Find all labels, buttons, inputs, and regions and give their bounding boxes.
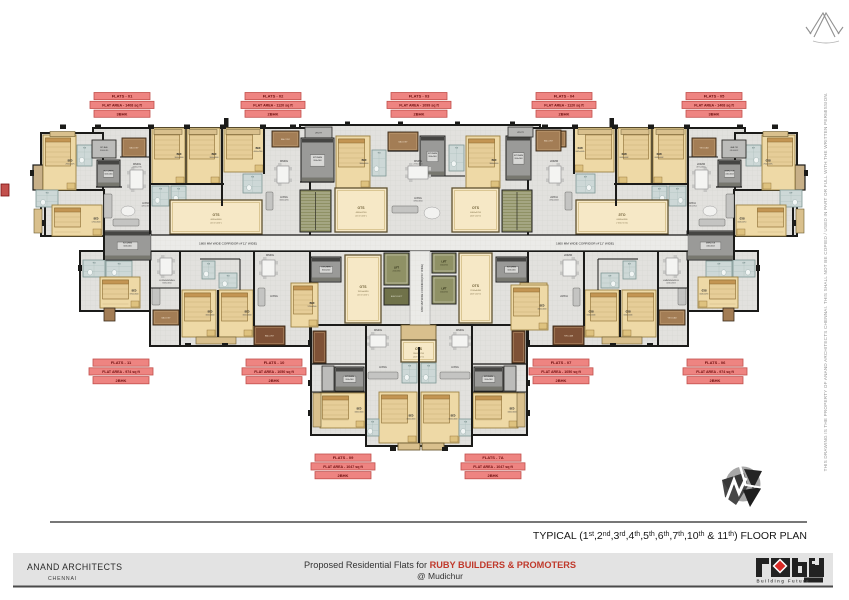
- svg-text:TOI: TOI: [427, 366, 430, 368]
- svg-text:BED: BED: [310, 303, 315, 305]
- svg-text:BALCONY: BALCONY: [398, 141, 408, 144]
- svg-text:OTS: OTS: [618, 213, 626, 217]
- svg-text:TYPICAL (1st,2nd,3rd,4th,5th,6: TYPICAL (1st,2nd,3rd,4th,5th,6th,7th,10t…: [533, 530, 807, 542]
- svg-text:3000x4265: 3000x4265: [549, 200, 558, 202]
- svg-text:FLAT AREA - 974 sq ft: FLAT AREA - 974 sq ft: [696, 370, 734, 374]
- svg-text:BED: BED: [132, 291, 137, 293]
- svg-text:TOI: TOI: [584, 177, 587, 179]
- svg-text:BALCONY: BALCONY: [265, 335, 275, 338]
- svg-text:BED: BED: [588, 312, 593, 314]
- svg-text:3000x2400: 3000x2400: [345, 379, 353, 381]
- svg-text:BED: BED: [577, 148, 582, 150]
- svg-text:TOI: TOI: [455, 148, 458, 150]
- svg-text:FLATS - 04: FLATS - 04: [554, 94, 575, 99]
- svg-text:BED: BED: [409, 416, 414, 418]
- svg-text:TOI: TOI: [177, 189, 180, 191]
- svg-text:TOI: TOI: [378, 153, 381, 155]
- svg-text:LIVING: LIVING: [270, 296, 278, 298]
- svg-text:BED: BED: [208, 312, 213, 314]
- svg-text:Building Future: Building Future: [757, 579, 811, 584]
- svg-text:2084x1480: 2084x1480: [100, 150, 108, 152]
- svg-text:TOI: TOI: [83, 148, 86, 150]
- svg-text:TOI: TOI: [207, 264, 210, 266]
- svg-text:FLATS - 07: FLATS - 07: [551, 360, 572, 365]
- svg-text:FLATS - 03: FLATS - 03: [409, 94, 430, 99]
- svg-text:4400x3700: 4400x3700: [356, 212, 368, 214]
- svg-text:DINING: DINING: [280, 161, 288, 163]
- svg-text:BED: BED: [357, 409, 362, 411]
- svg-text:UTILITY: UTILITY: [517, 132, 525, 134]
- svg-text:SIT-BAL: SIT-BAL: [100, 146, 109, 149]
- svg-text:KITCHEN: KITCHEN: [104, 171, 114, 173]
- svg-text:3400x3000: 3400x3000: [508, 412, 517, 414]
- svg-text:TOI: TOI: [118, 264, 121, 266]
- svg-text:3000x2400: 3000x2400: [104, 174, 112, 176]
- svg-text:3000x2400: 3000x2400: [725, 174, 733, 176]
- svg-text:LIFT: LIFT: [394, 267, 400, 270]
- svg-text:BALCONY: BALCONY: [544, 140, 554, 143]
- svg-text:3780x3050: 3780x3050: [413, 201, 422, 203]
- svg-text:UTILITY: UTILITY: [315, 133, 323, 135]
- svg-text:TOI: TOI: [658, 189, 661, 191]
- svg-text:BED: BED: [68, 161, 73, 163]
- svg-text:4000x4300: 4000x4300: [576, 151, 585, 153]
- svg-text:3BHK: 3BHK: [709, 111, 720, 116]
- svg-text:3000x4000: 3000x4000: [587, 315, 596, 317]
- svg-text:(15'1"x11'5"): (15'1"x11'5"): [355, 216, 366, 218]
- svg-text:FLATS - 7A: FLATS - 7A: [482, 455, 503, 460]
- svg-text:3000x4000: 3000x4000: [360, 163, 369, 165]
- svg-text:3400x3000: 3400x3000: [355, 412, 364, 414]
- svg-text:3000x2400: 3000x2400: [706, 246, 714, 248]
- svg-text:ANAND ARCHITECTS: ANAND ARCHITECTS: [27, 562, 122, 572]
- svg-text:2030x2745: 2030x2745: [132, 167, 141, 169]
- svg-text:BALCONY: BALCONY: [667, 317, 677, 320]
- svg-text:FLATS - 02: FLATS - 02: [263, 94, 284, 99]
- svg-text:4400x3700: 4400x3700: [470, 212, 482, 214]
- svg-text:(15'1"x11'5"): (15'1"x11'5"): [616, 223, 627, 225]
- svg-text:3000x4265: 3000x4265: [279, 200, 288, 202]
- svg-text:2900x4475: 2900x4475: [66, 164, 75, 166]
- svg-text:KITCHEN: KITCHEN: [428, 153, 438, 155]
- svg-text:DINING: DINING: [550, 161, 558, 163]
- svg-text:LIFT: LIFT: [441, 261, 447, 264]
- svg-text:KITCHEN: KITCHEN: [507, 267, 517, 269]
- svg-text:BALCONY: BALCONY: [699, 147, 709, 150]
- svg-text:2BHK: 2BHK: [116, 378, 127, 383]
- svg-text:3000x2400: 3000x2400: [484, 379, 492, 381]
- svg-text:FLATS - 01: FLATS - 01: [112, 94, 133, 99]
- svg-text:2000x1900: 2000x1900: [440, 292, 448, 294]
- svg-text:3000x2400: 3000x2400: [123, 246, 131, 248]
- svg-text:2000x1900: 2000x1900: [440, 265, 448, 267]
- svg-text:BALCONY: BALCONY: [281, 138, 291, 141]
- svg-text:1800 MM WIDE CORRIDOR (4'11" W: 1800 MM WIDE CORRIDOR (4'11" WIDE): [556, 242, 614, 246]
- svg-text:TOI: TOI: [408, 366, 411, 368]
- svg-text:KITCHEN: KITCHEN: [484, 376, 494, 378]
- svg-text:FLAT AREA - 1047 sq ft: FLAT AREA - 1047 sq ft: [473, 465, 513, 469]
- svg-text:BED: BED: [701, 291, 706, 293]
- svg-text:BED: BED: [212, 154, 217, 156]
- svg-text:3000x4000: 3000x4000: [655, 157, 664, 159]
- svg-text:BED: BED: [540, 306, 545, 308]
- svg-text:1700x4500: 1700x4500: [92, 222, 101, 224]
- svg-text:2BHK: 2BHK: [556, 378, 567, 383]
- svg-text:BED: BED: [765, 161, 770, 163]
- svg-text:2030x2745: 2030x2745: [696, 167, 705, 169]
- svg-text:3000x4000: 3000x4000: [449, 419, 458, 421]
- svg-text:KITCHEN: KITCHEN: [313, 157, 323, 159]
- svg-text:3000x4000: 3000x4000: [624, 315, 633, 317]
- svg-text:3000x4000: 3000x4000: [175, 157, 184, 159]
- svg-text:@ Mudichur: @ Mudichur: [417, 571, 463, 581]
- svg-text:3000x2400: 3000x2400: [514, 158, 522, 160]
- svg-text:BED: BED: [245, 312, 250, 314]
- svg-text:TOI: TOI: [608, 276, 611, 278]
- svg-text:BED: BED: [177, 154, 182, 156]
- svg-text:TOI: TOI: [752, 148, 755, 150]
- svg-text:3000x4000: 3000x4000: [407, 419, 416, 421]
- svg-text:TOI: TOI: [464, 422, 467, 424]
- svg-text:(15'1"x11'5"): (15'1"x11'5"): [470, 216, 481, 218]
- svg-text:6050x3500: 6050x3500: [211, 219, 223, 221]
- svg-text:FLATS - 06: FLATS - 06: [705, 360, 726, 365]
- svg-text:2084x1480: 2084x1480: [730, 150, 738, 152]
- svg-text:2BHK: 2BHK: [488, 473, 499, 478]
- svg-text:THIS DRAWING IS THE PROPERTY O: THIS DRAWING IS THE PROPERTY OF ANAND AR…: [823, 93, 828, 472]
- svg-text:LIVING: LIVING: [379, 367, 387, 369]
- svg-text:FLATS - 10: FLATS - 10: [264, 360, 285, 365]
- svg-text:KITCHEN: KITCHEN: [321, 267, 331, 269]
- svg-text:1700x4500: 1700x4500: [308, 306, 317, 308]
- svg-text:2BHK: 2BHK: [710, 378, 721, 383]
- svg-text:LIVING: LIVING: [560, 296, 568, 298]
- svg-text:BALCONY: BALCONY: [129, 147, 139, 150]
- svg-text:BED: BED: [656, 154, 661, 156]
- svg-text:6585x3050: 6585x3050: [666, 283, 675, 285]
- svg-text:FLAT AREA - 1408 sq ft: FLAT AREA - 1408 sq ft: [102, 104, 142, 108]
- svg-text:(15'1"x11'5"): (15'1"x11'5"): [210, 223, 221, 225]
- svg-text:Proposed Residential Flats for: Proposed Residential Flats for RUBY BUIL…: [304, 560, 576, 570]
- svg-text:1950x4500: 1950x4500: [700, 294, 709, 296]
- svg-text:BED: BED: [510, 409, 515, 411]
- svg-text:2900x4475: 2900x4475: [764, 164, 773, 166]
- svg-text:(15'1"x11'5"): (15'1"x11'5"): [357, 295, 368, 297]
- svg-text:3BHK: 3BHK: [117, 111, 128, 116]
- svg-text:DINING: DINING: [456, 330, 464, 332]
- svg-text:DINING: DINING: [564, 255, 572, 257]
- svg-text:3000x2400: 3000x2400: [322, 270, 330, 272]
- svg-text:2BHK: 2BHK: [268, 111, 279, 116]
- svg-text:2BHK: 2BHK: [414, 111, 425, 116]
- svg-text:ELEC.DUCT: ELEC.DUCT: [391, 296, 403, 298]
- svg-text:3000x4000: 3000x4000: [620, 157, 629, 159]
- svg-text:1950x4500: 1950x4500: [130, 294, 139, 296]
- svg-text:SIT-BAL: SIT-BAL: [729, 146, 738, 149]
- svg-text:BED: BED: [739, 219, 744, 221]
- svg-text:TOI: TOI: [628, 264, 631, 266]
- svg-text:BED: BED: [492, 160, 497, 162]
- svg-text:BALCONY: BALCONY: [563, 335, 573, 338]
- svg-text:BED: BED: [256, 148, 261, 150]
- svg-text:TOI: TOI: [93, 263, 96, 265]
- svg-text:BALCONY: BALCONY: [161, 317, 171, 320]
- svg-text:1800 MM WIDE CORRIDOR(4'11" WI: 1800 MM WIDE CORRIDOR(4'11" WIDE): [420, 264, 424, 312]
- svg-text:OTS: OTS: [213, 213, 221, 217]
- svg-text:3000x4000: 3000x4000: [538, 309, 547, 311]
- svg-text:6050x3500: 6050x3500: [616, 219, 628, 221]
- svg-text:3000x4000: 3000x4000: [490, 163, 499, 165]
- svg-text:1800 MM WIDE CORRIDOR (4'11" W: 1800 MM WIDE CORRIDOR (4'11" WIDE): [199, 242, 257, 246]
- svg-text:4000x4300: 4000x4300: [254, 151, 263, 153]
- svg-text:OTS: OTS: [472, 206, 480, 210]
- svg-text:LIFT: LIFT: [441, 288, 447, 291]
- svg-text:3000x2400: 3000x2400: [428, 156, 436, 158]
- svg-text:3000x4000: 3000x4000: [206, 315, 215, 317]
- svg-text:CHENNAI: CHENNAI: [48, 576, 77, 582]
- svg-text:FLAT AREA - 1120 sq ft: FLAT AREA - 1120 sq ft: [253, 104, 293, 108]
- svg-text:2BHK: 2BHK: [269, 378, 280, 383]
- svg-text:BED: BED: [94, 219, 99, 221]
- svg-text:TOI: TOI: [371, 422, 374, 424]
- svg-text:FLAT AREA - 1047 sq ft: FLAT AREA - 1047 sq ft: [323, 465, 363, 469]
- svg-text:KITCHEN: KITCHEN: [123, 243, 133, 245]
- svg-text:7010x6490: 7010x6490: [470, 290, 482, 292]
- svg-text:FLATS - 05: FLATS - 05: [704, 94, 725, 99]
- svg-text:2000x1900: 2000x1900: [393, 271, 401, 273]
- svg-text:FLAT AREA - 1120 sq ft: FLAT AREA - 1120 sq ft: [544, 104, 584, 108]
- svg-text:TOI: TOI: [717, 264, 720, 266]
- svg-text:2BHK: 2BHK: [559, 111, 570, 116]
- svg-text:OTS: OTS: [360, 285, 368, 289]
- svg-text:BED: BED: [621, 154, 626, 156]
- svg-text:3000x2400: 3000x2400: [313, 160, 321, 162]
- svg-text:LIVING: LIVING: [451, 367, 459, 369]
- svg-text:FLAT AREA - 974 sq ft: FLAT AREA - 974 sq ft: [102, 370, 140, 374]
- svg-text:KITCHEN: KITCHEN: [514, 155, 524, 157]
- svg-text:TOI: TOI: [46, 193, 49, 195]
- svg-text:DINING: DINING: [266, 255, 274, 257]
- svg-text:1700x4500: 1700x4500: [738, 222, 747, 224]
- svg-text:TOI: TOI: [159, 189, 162, 191]
- svg-text:FLAT AREA - 1099 sq ft: FLAT AREA - 1099 sq ft: [399, 104, 439, 108]
- svg-text:FLAT AREA - 1408 sq ft: FLAT AREA - 1408 sq ft: [694, 104, 734, 108]
- svg-text:3000x4000: 3000x4000: [210, 157, 219, 159]
- svg-text:OTS: OTS: [472, 284, 480, 288]
- svg-text:KITCHEN: KITCHEN: [345, 376, 355, 378]
- svg-text:BED: BED: [362, 160, 367, 162]
- svg-text:KITCHEN: KITCHEN: [724, 171, 734, 173]
- svg-text:TOI: TOI: [742, 263, 745, 265]
- svg-text:FLAT AREA - 1050 sq ft: FLAT AREA - 1050 sq ft: [254, 370, 294, 374]
- svg-text:OTS: OTS: [358, 206, 366, 210]
- svg-text:TOI: TOI: [789, 193, 792, 195]
- svg-text:3000x2400: 3000x2400: [507, 270, 515, 272]
- svg-text:KITCHEN: KITCHEN: [705, 243, 715, 245]
- svg-text:(15'1"x11'5"): (15'1"x11'5"): [470, 294, 481, 296]
- svg-text:BED: BED: [451, 416, 456, 418]
- svg-text:FLATS - 11: FLATS - 11: [111, 360, 132, 365]
- svg-text:BED: BED: [625, 312, 630, 314]
- svg-text:TOI: TOI: [676, 189, 679, 191]
- svg-text:7010x6490: 7010x6490: [358, 291, 370, 293]
- svg-text:DINING: DINING: [374, 330, 382, 332]
- svg-text:FLATS - 09: FLATS - 09: [333, 455, 354, 460]
- svg-text:FLAT AREA - 1050 sq ft: FLAT AREA - 1050 sq ft: [541, 370, 581, 374]
- svg-text:6585x3050: 6585x3050: [162, 283, 171, 285]
- svg-text:2BHK: 2BHK: [338, 473, 349, 478]
- svg-text:TOI: TOI: [227, 276, 230, 278]
- svg-text:TOI: TOI: [251, 177, 254, 179]
- svg-text:2745x3050: 2745x3050: [413, 164, 422, 166]
- svg-text:3000x4000: 3000x4000: [243, 315, 252, 317]
